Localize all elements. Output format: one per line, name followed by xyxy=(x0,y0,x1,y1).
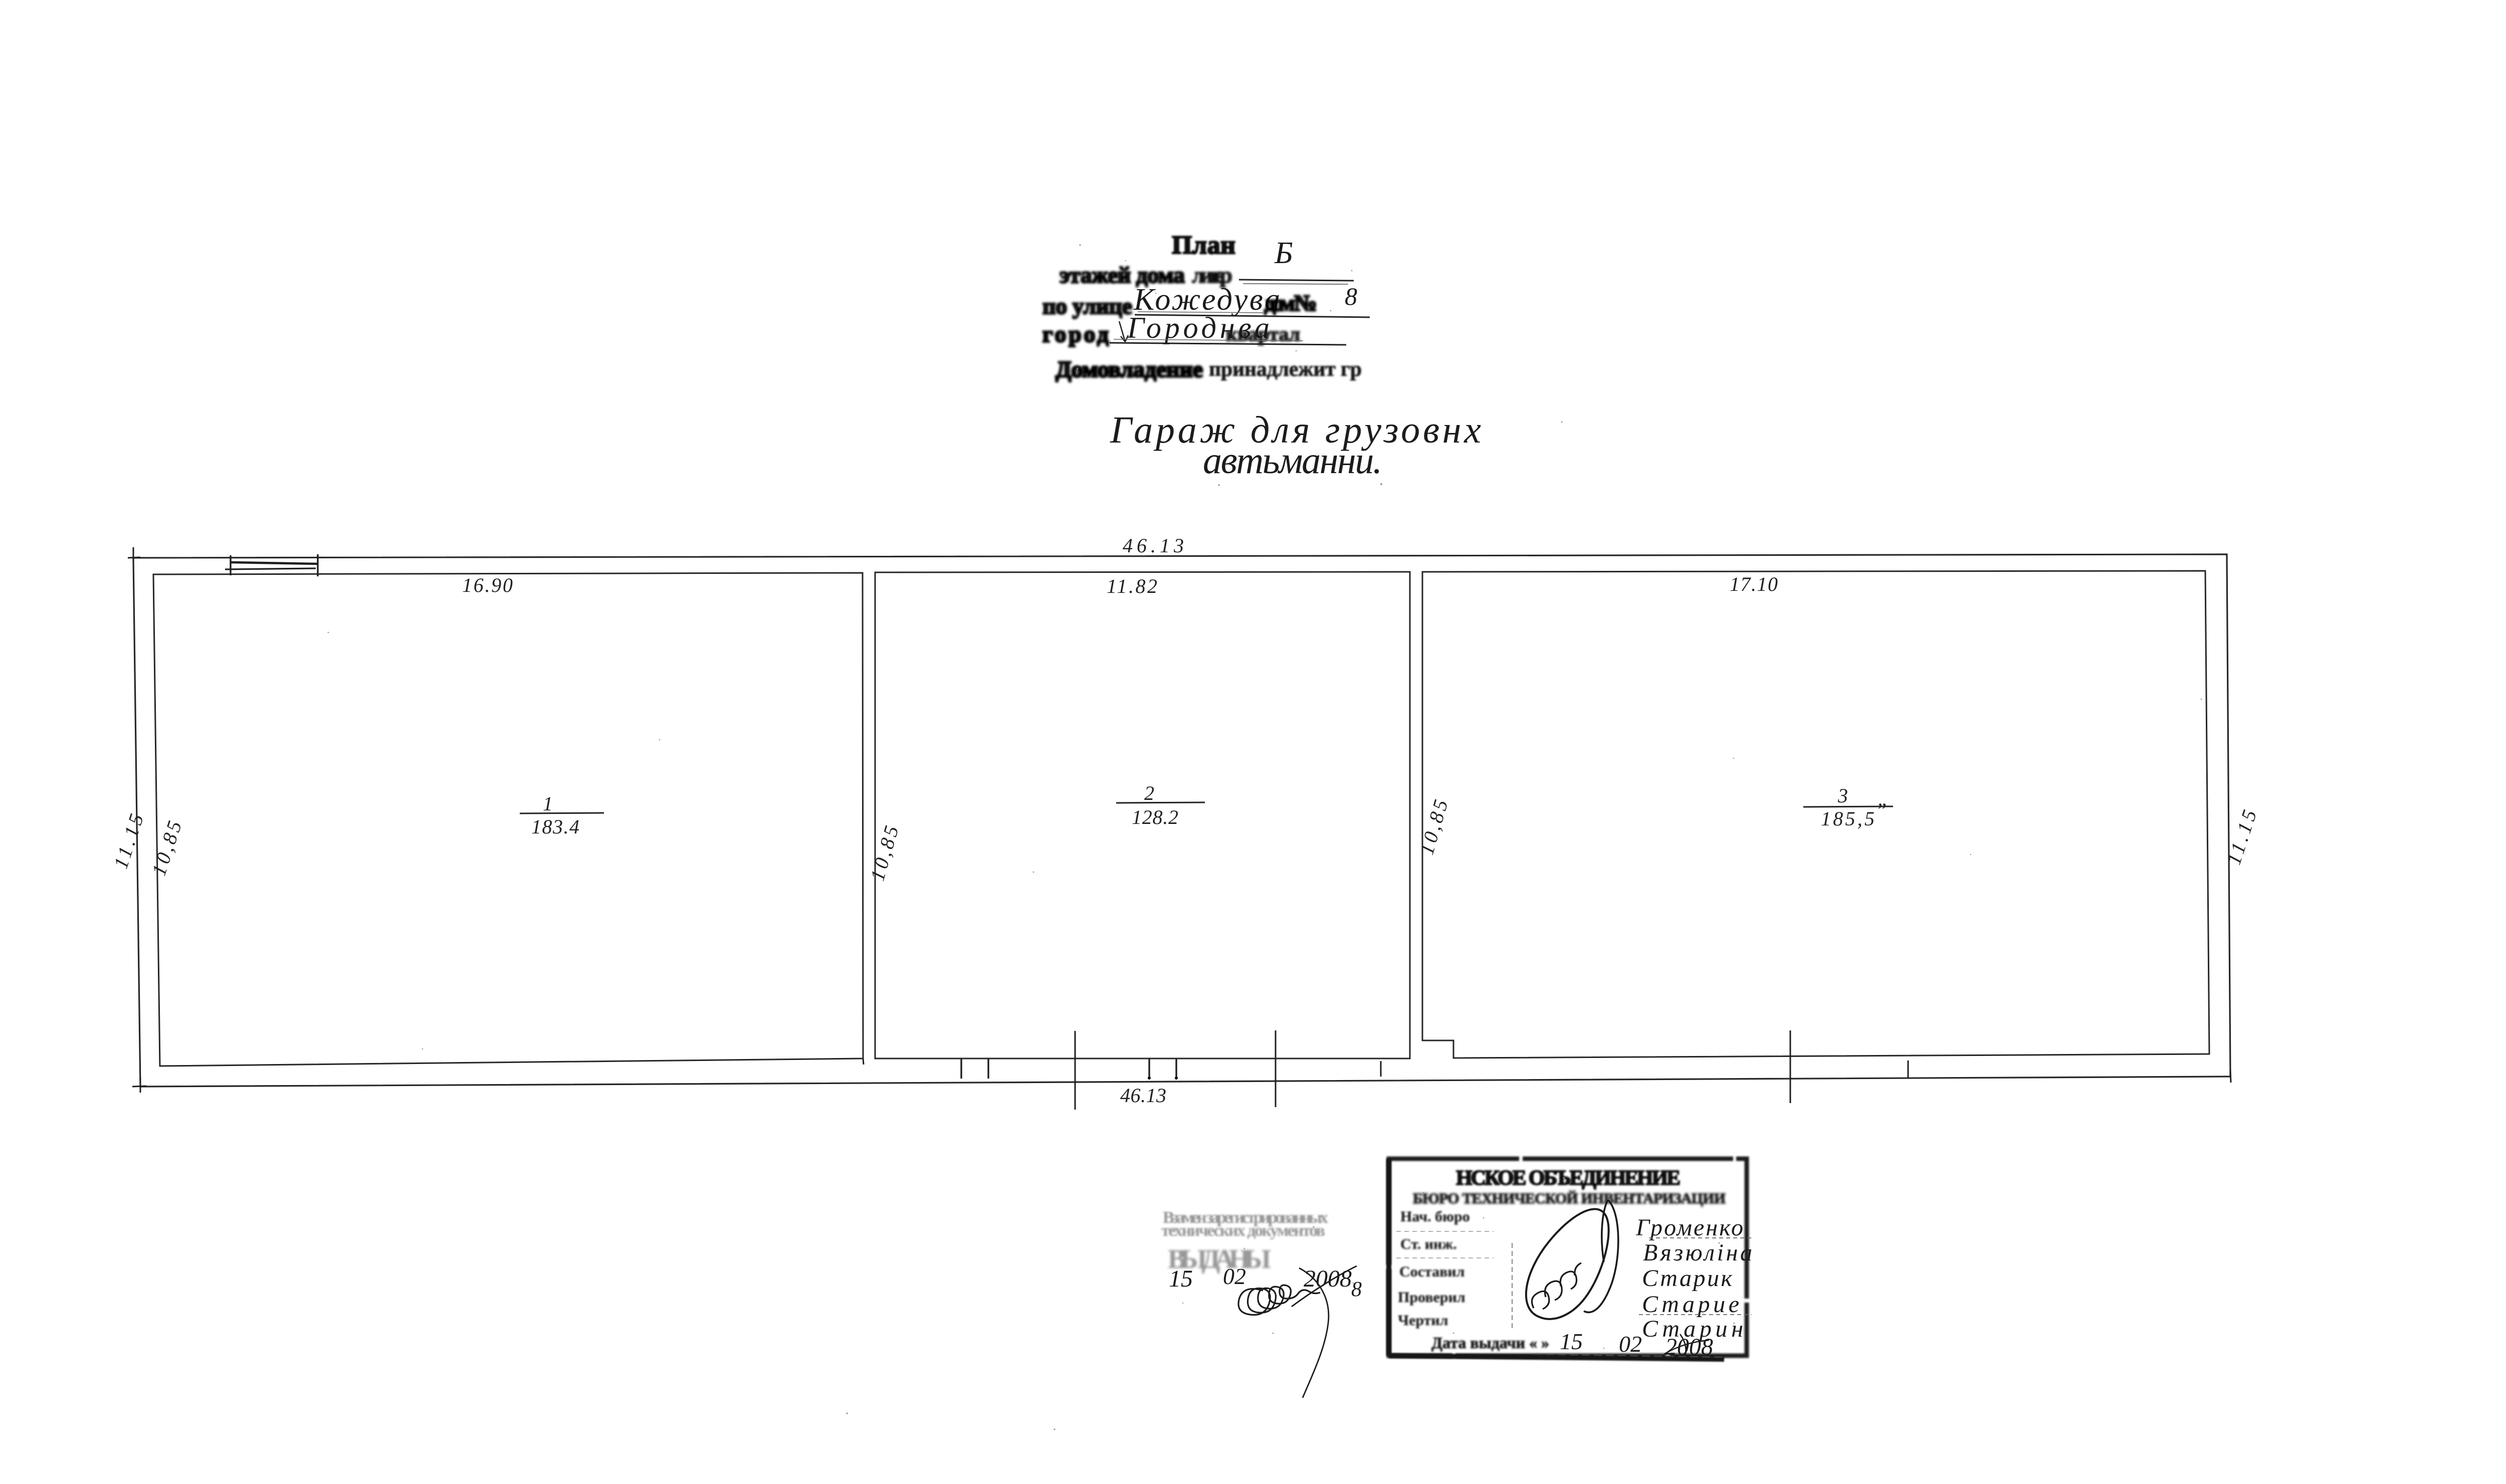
svg-text:3: 3 xyxy=(1837,784,1848,807)
svg-text:квартал: квартал xyxy=(1226,323,1300,345)
svg-text:дом №: дом № xyxy=(1264,290,1317,316)
svg-text:БЮРО ТЕХНИЧЕСКОЙ ИНВЕНТАРИЗА: БЮРО ТЕХНИЧЕСКОЙ ИНВЕНТАРИЗАЦИИ xyxy=(1413,1190,1726,1207)
svg-text:8: 8 xyxy=(1345,282,1357,310)
svg-text:Чертил: Чертил xyxy=(1398,1312,1448,1329)
svg-text:План: План xyxy=(1172,231,1241,260)
svg-text:НСКОЕ ОБЪЕДИНЕНИЕ: НСКОЕ ОБЪЕДИНЕНИЕ xyxy=(1456,1167,1682,1190)
svg-text:Нач. бюро: Нач. бюро xyxy=(1400,1208,1470,1225)
svg-text:Старик: Старик xyxy=(1642,1265,1733,1292)
svg-text:1: 1 xyxy=(543,792,553,815)
svg-text:17.10: 17.10 xyxy=(1730,573,1778,595)
svg-text:2008: 2008 xyxy=(1304,1265,1352,1292)
svg-text:02: 02 xyxy=(1619,1331,1642,1357)
svg-text:автьманни.: автьманни. xyxy=(1203,440,1382,482)
svg-text:принадлежит гр: принадлежит гр xyxy=(1209,358,1362,381)
svg-text:Домовладение: Домовладение xyxy=(1056,356,1203,382)
svg-text:46.13: 46.13 xyxy=(1120,1084,1166,1107)
svg-text:по улице: по улице xyxy=(1042,293,1132,319)
svg-text:15: 15 xyxy=(1560,1329,1583,1354)
svg-text:185,5: 185,5 xyxy=(1821,807,1874,830)
svg-text:Составил: Составил xyxy=(1399,1263,1465,1280)
svg-text:Дата выдачи « »: Дата выдачи « » xyxy=(1431,1334,1549,1352)
svg-text:02: 02 xyxy=(1223,1263,1246,1289)
svg-text:16.90: 16.90 xyxy=(462,574,513,596)
svg-text:Проверил: Проверил xyxy=(1398,1289,1466,1306)
svg-text:2: 2 xyxy=(1144,782,1154,804)
svg-text:Ст. инж.: Ст. инж. xyxy=(1400,1236,1457,1252)
svg-text:15: 15 xyxy=(1169,1265,1193,1292)
svg-text:Б: Б xyxy=(1274,236,1293,270)
svg-text:Старие: Старие xyxy=(1642,1291,1739,1318)
svg-text:технических документов: технических документов xyxy=(1161,1221,1325,1240)
svg-text:”: ” xyxy=(1875,799,1887,821)
svg-text:46.13: 46.13 xyxy=(1123,534,1184,557)
svg-text:128.2: 128.2 xyxy=(1132,806,1178,828)
svg-text:183.4: 183.4 xyxy=(531,815,579,838)
svg-text:8: 8 xyxy=(1351,1278,1362,1301)
svg-text:11.82: 11.82 xyxy=(1107,575,1157,597)
svg-text:Громенко: Громенко xyxy=(1635,1214,1743,1241)
